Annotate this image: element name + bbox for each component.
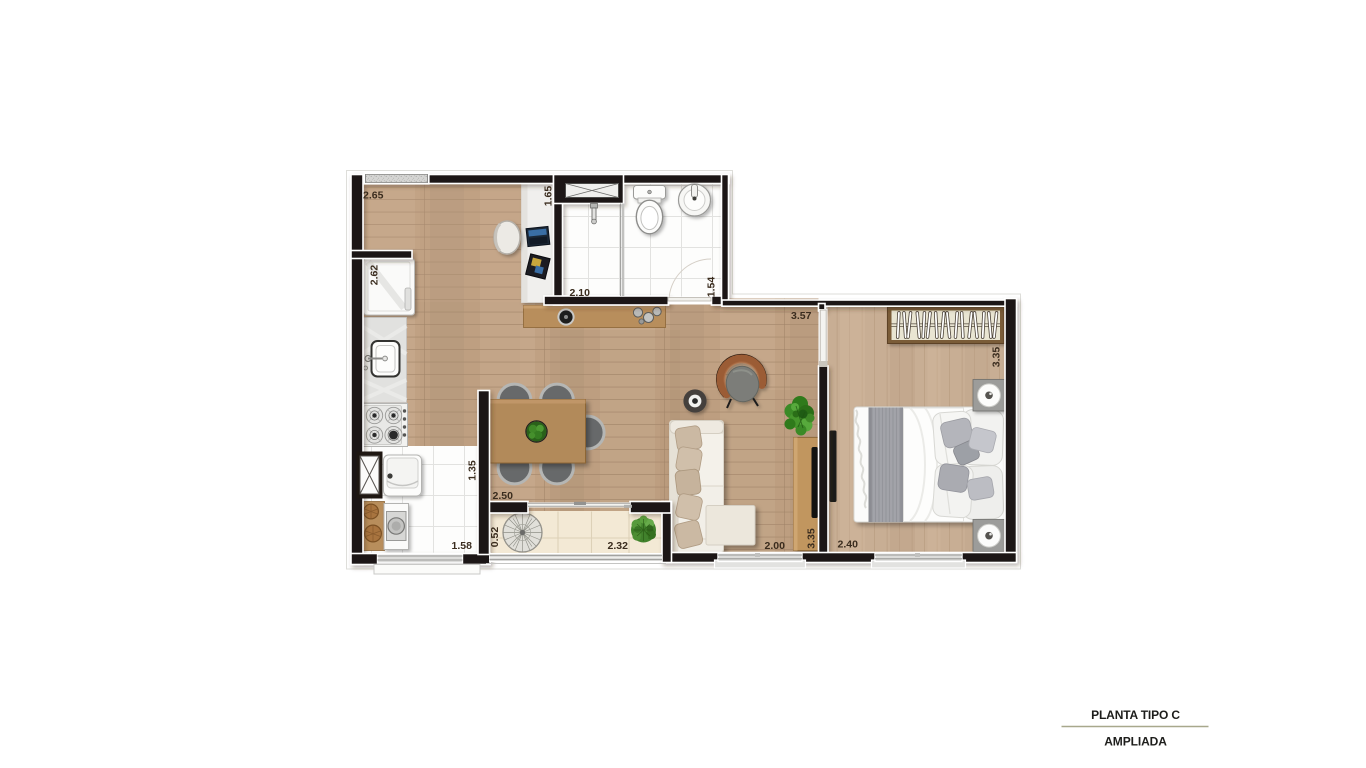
svg-text:3.57: 3.57: [791, 310, 812, 322]
svg-text:AMPLIADA: AMPLIADA: [1104, 735, 1167, 749]
svg-text:2.00: 2.00: [765, 540, 786, 552]
svg-text:2.65: 2.65: [363, 190, 384, 202]
svg-text:0.52: 0.52: [489, 527, 501, 548]
svg-text:2.40: 2.40: [838, 539, 859, 551]
svg-text:3.35: 3.35: [991, 347, 1003, 368]
svg-text:1.58: 1.58: [452, 540, 473, 552]
svg-text:2.10: 2.10: [570, 287, 591, 299]
svg-text:2.50: 2.50: [493, 490, 514, 502]
svg-text:2.32: 2.32: [608, 540, 629, 552]
svg-text:PLANTA TIPO C: PLANTA TIPO C: [1091, 708, 1180, 722]
svg-text:1.65: 1.65: [543, 186, 555, 207]
svg-text:2.62: 2.62: [369, 265, 381, 286]
svg-text:1.35: 1.35: [467, 460, 479, 481]
svg-text:1.54: 1.54: [706, 277, 718, 298]
svg-text:3.35: 3.35: [806, 528, 818, 549]
